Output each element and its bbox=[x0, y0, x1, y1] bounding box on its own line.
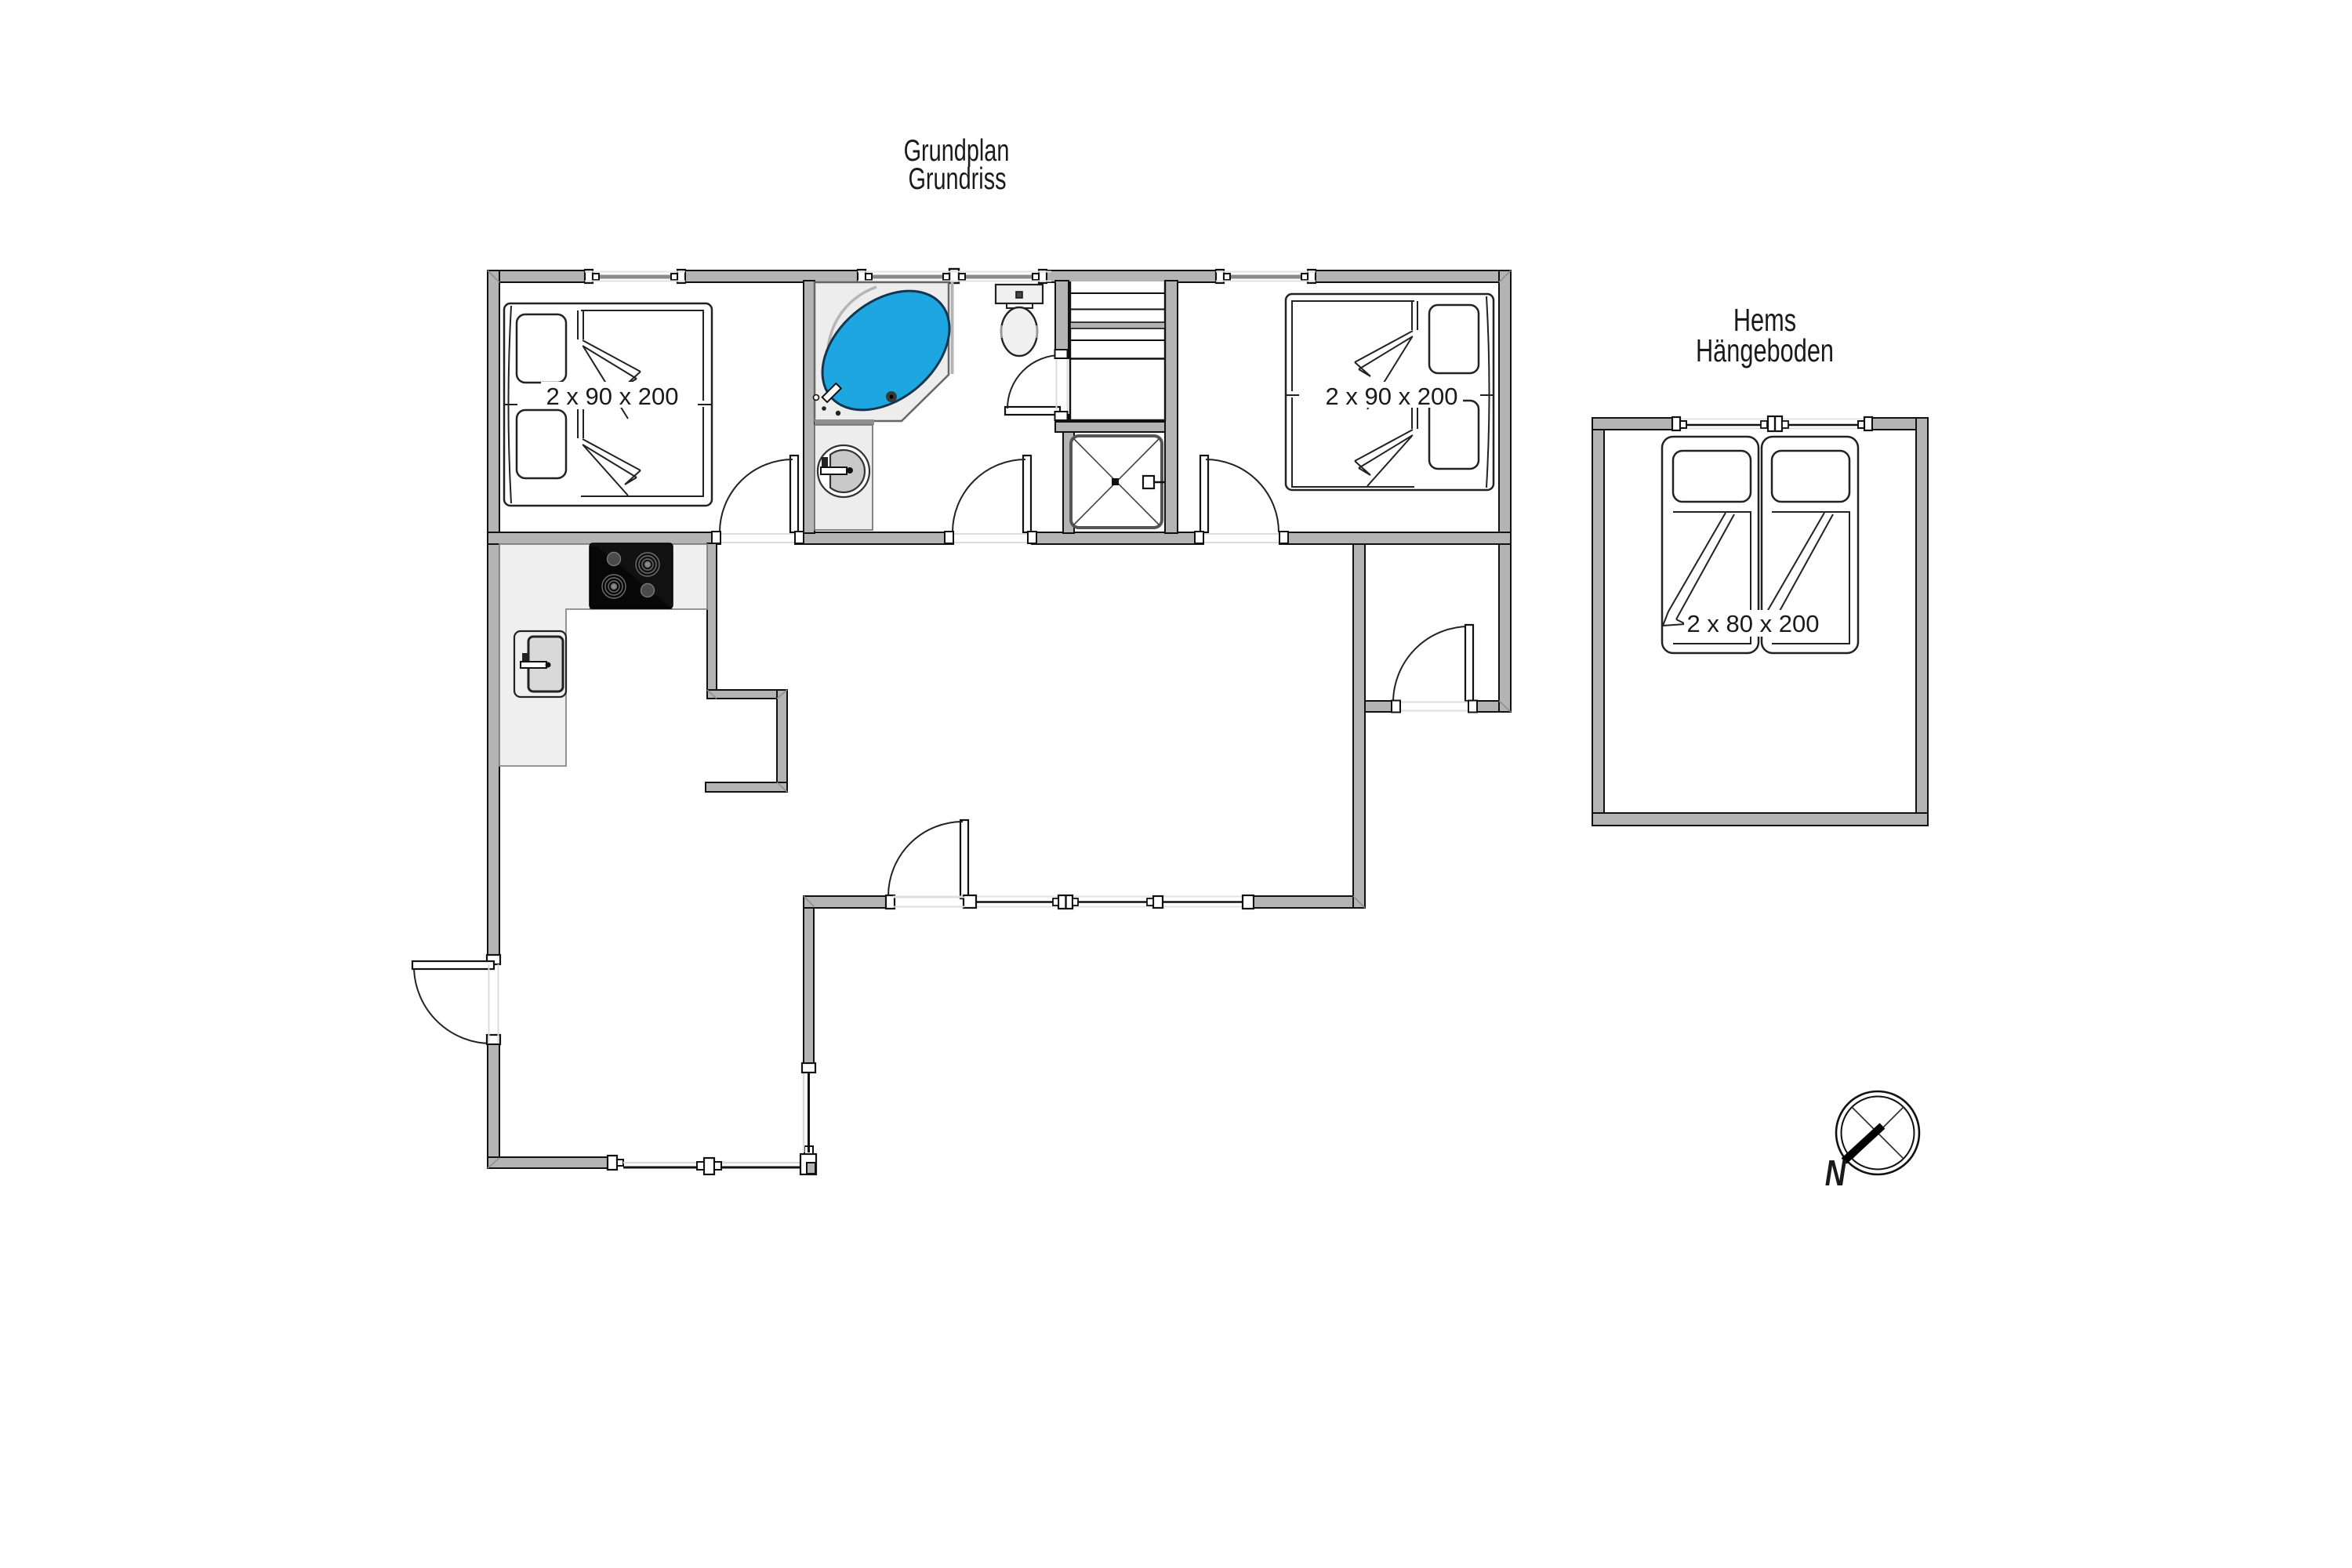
svg-text:2 x 80 x 200: 2 x 80 x 200 bbox=[1687, 610, 1820, 637]
svg-text:2 x 90 x 200: 2 x 90 x 200 bbox=[546, 383, 679, 410]
svg-text:Grundriss: Grundriss bbox=[908, 162, 1006, 196]
svg-text:2 x 90 x 200: 2 x 90 x 200 bbox=[1326, 383, 1458, 410]
svg-text:Hängeboden: Hängeboden bbox=[1696, 332, 1834, 368]
svg-text:N: N bbox=[1825, 1152, 1846, 1193]
